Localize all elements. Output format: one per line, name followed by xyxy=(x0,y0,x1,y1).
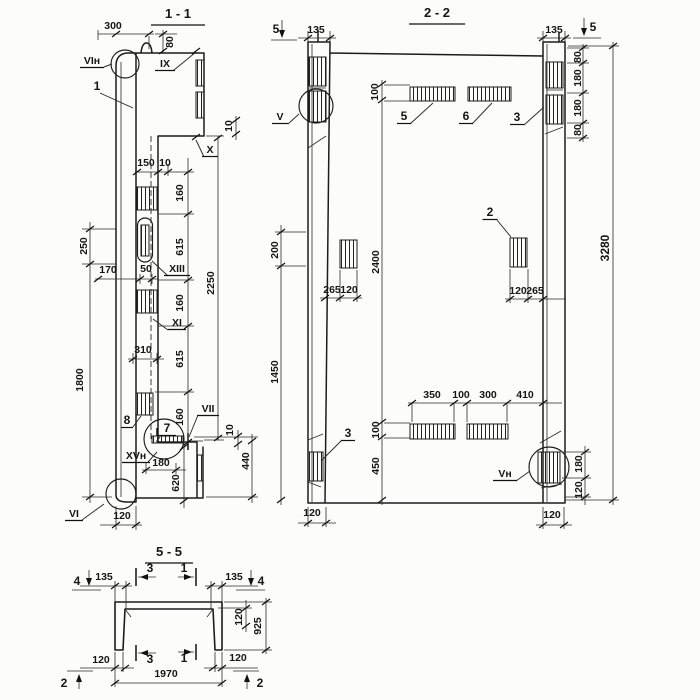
section-1-1: 1 - 130080VIнIX110X150101606151606151602… xyxy=(65,6,258,530)
dimension-text: 265 xyxy=(323,284,341,296)
corner-marks xyxy=(125,609,213,617)
view-label: IX xyxy=(160,58,170,70)
dimension-text: 120 xyxy=(340,284,358,296)
dimension-text: 160 xyxy=(174,294,186,312)
dimension-text: 100 xyxy=(452,389,470,401)
cut-label: 2 xyxy=(61,676,68,690)
position-label: 1 xyxy=(94,79,101,93)
embed-plate xyxy=(308,452,323,481)
dimension-text: 450 xyxy=(370,457,382,475)
dimension-text: 440 xyxy=(240,452,252,470)
dimension-text: 80 xyxy=(572,124,584,136)
dimension-text: 300 xyxy=(479,389,497,401)
dimension-text: 200 xyxy=(269,241,281,259)
cut-label: 3 xyxy=(147,652,154,666)
dimension-text: 160 xyxy=(174,184,186,202)
dimension-text: 50 xyxy=(140,263,152,275)
dimension-text: 80 xyxy=(572,51,584,63)
dimension-text: 10 xyxy=(223,120,235,132)
dimension-text: 3280 xyxy=(598,234,612,261)
section-5-5: 5 - 5413531135412092512031120197022 xyxy=(61,544,272,690)
cut-arrowheads xyxy=(279,28,587,38)
dimension-text: 265 xyxy=(526,285,544,297)
section-title: 5 - 5 xyxy=(156,544,182,559)
dimension-text: 180 xyxy=(572,99,584,117)
view-label: Vн xyxy=(498,468,511,480)
position-label: 3 xyxy=(345,426,352,440)
dimension-text: 120 xyxy=(233,608,245,626)
view-label: XIII xyxy=(169,263,185,275)
engineering-drawing-canvas: 1 - 130080VIнIX110X150101606151606151602… xyxy=(0,0,700,700)
dimension-text: 300 xyxy=(104,20,122,32)
section-title: 2 - 2 xyxy=(424,5,450,20)
dimension-text: 180 xyxy=(152,457,170,469)
embed-plate xyxy=(340,240,357,268)
cut-label: 4 xyxy=(74,574,81,588)
cut-label: 4 xyxy=(258,574,265,588)
dimension-text: 135 xyxy=(95,571,113,583)
cut-label: 5 xyxy=(273,22,280,36)
cut-label: 1 xyxy=(181,651,188,665)
dimension-text: 170 xyxy=(99,264,117,276)
embed-plate xyxy=(196,92,204,118)
dimension-lines xyxy=(82,30,258,530)
embed-plate xyxy=(196,60,204,86)
cut-label: 5 xyxy=(590,20,597,34)
view-label: X xyxy=(206,144,213,156)
view-label: XI xyxy=(172,317,182,329)
cut-plane-bars xyxy=(136,568,196,661)
dimension-text: 120 xyxy=(92,654,110,666)
dimension-text: 180 xyxy=(572,69,584,87)
dimension-text: 150 xyxy=(137,157,155,169)
dimension-text: 925 xyxy=(252,617,264,635)
dimension-text: 135 xyxy=(545,24,563,36)
view-label: VII xyxy=(202,403,215,415)
dimension-text: 120 xyxy=(113,510,131,522)
view-label: VIн xyxy=(84,55,100,67)
dimension-text: 410 xyxy=(516,389,534,401)
embed-plate xyxy=(510,238,527,267)
embed-plate xyxy=(538,452,560,483)
embed-plate xyxy=(137,187,157,210)
dimension-text: 120 xyxy=(543,509,561,521)
position-label: 8 xyxy=(124,413,131,427)
dimension-text: 10 xyxy=(159,157,171,169)
dimension-text: 120 xyxy=(573,481,585,499)
position-label: 5 xyxy=(401,109,408,123)
position-label: 2 xyxy=(487,205,494,219)
cut-label: 1 xyxy=(181,561,188,575)
embed-plate xyxy=(410,87,455,101)
embed-plate xyxy=(137,290,157,313)
dimension-text: 615 xyxy=(174,238,186,256)
dimension-text: 1970 xyxy=(154,668,178,680)
view-label: XVн xyxy=(126,450,146,462)
embed-plate xyxy=(410,424,455,439)
dimension-text: 1450 xyxy=(269,360,281,384)
dimension-text: 120 xyxy=(509,285,527,297)
dimension-ticks xyxy=(86,31,256,528)
cut-label: 3 xyxy=(147,561,154,575)
dimension-text: 135 xyxy=(225,571,243,583)
cut-label: 2 xyxy=(257,676,264,690)
dimension-text: 2400 xyxy=(370,250,382,274)
dimension-text: 10 xyxy=(224,424,236,436)
section-title: 1 - 1 xyxy=(165,6,191,21)
embed-plate xyxy=(309,57,326,86)
embed-plate xyxy=(467,424,508,439)
dimension-text: 100 xyxy=(370,421,382,439)
dimension-text: 2250 xyxy=(205,271,217,295)
embed-plate xyxy=(546,62,563,88)
embed-plate xyxy=(136,393,153,415)
drawing-sheet: 1 - 130080VIнIX110X150101606151606151602… xyxy=(0,0,700,700)
dimension-text: 180 xyxy=(573,455,585,473)
dimension-text: 350 xyxy=(423,389,441,401)
dimension-text: 120 xyxy=(303,507,321,519)
position-label: 6 xyxy=(463,109,470,123)
view-label: V xyxy=(276,111,283,123)
dimension-text: 135 xyxy=(307,24,325,36)
dimension-text: 1800 xyxy=(74,368,86,392)
dimension-text: 120 xyxy=(229,652,247,664)
dimension-text: 620 xyxy=(170,474,182,492)
dimension-text: 310 xyxy=(134,344,152,356)
dimension-ticks xyxy=(111,583,270,686)
position-label: 7 xyxy=(164,421,171,435)
embed-plate xyxy=(468,87,511,101)
dimension-text: 615 xyxy=(174,350,186,368)
embed-plate xyxy=(546,95,563,124)
detail-callout-circle xyxy=(111,50,139,78)
embed-plate xyxy=(197,455,203,481)
channel-outline xyxy=(115,602,222,650)
dimension-text: 160 xyxy=(174,408,186,426)
dimension-text: 250 xyxy=(78,237,90,255)
embed-plate xyxy=(141,225,149,256)
view-label: VI xyxy=(69,508,79,520)
embed-plate xyxy=(309,91,326,122)
dimension-text: 80 xyxy=(164,36,176,48)
dimension-text: 100 xyxy=(369,83,381,101)
section-2-2: 2 - 25135135580180180803280V100563220024… xyxy=(269,5,619,529)
position-label: 3 xyxy=(514,110,521,124)
